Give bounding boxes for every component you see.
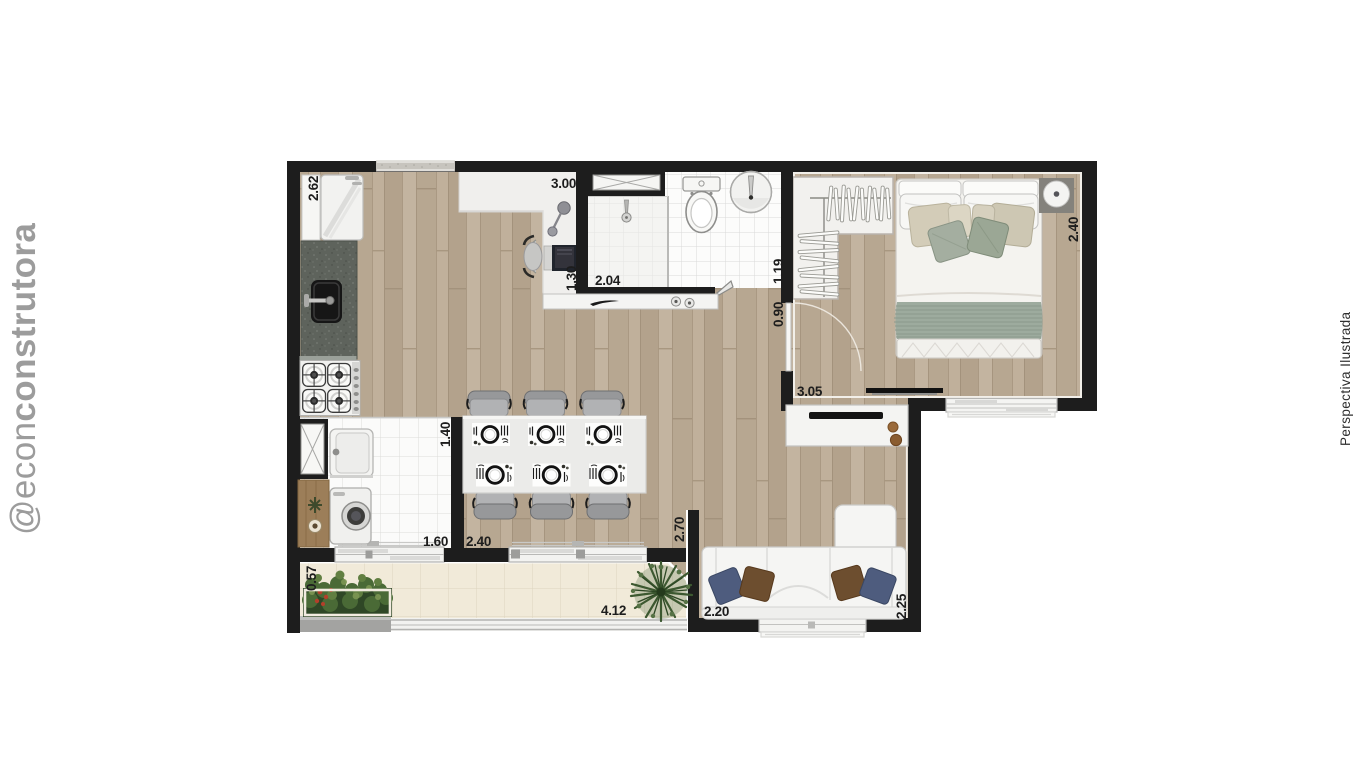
svg-text:2.04: 2.04	[595, 273, 621, 288]
svg-text:0.90: 0.90	[771, 302, 786, 327]
svg-text:3.05: 3.05	[797, 384, 823, 399]
svg-text:1.19: 1.19	[771, 259, 786, 284]
svg-text:1.40: 1.40	[438, 422, 453, 447]
svg-text:1.30: 1.30	[564, 266, 579, 291]
svg-text:2.62: 2.62	[306, 176, 321, 201]
svg-text:1.60: 1.60	[423, 534, 448, 549]
svg-text:3.00: 3.00	[551, 176, 576, 191]
svg-text:2.20: 2.20	[704, 604, 729, 619]
svg-text:4.12: 4.12	[601, 603, 626, 618]
svg-text:0.57: 0.57	[304, 566, 319, 591]
svg-text:2.70: 2.70	[672, 517, 687, 542]
svg-text:@econconstrutora: @econconstrutora	[4, 223, 43, 535]
svg-text:2.25: 2.25	[894, 593, 909, 619]
svg-text:2.40: 2.40	[1066, 217, 1081, 242]
svg-text:2.40: 2.40	[466, 534, 491, 549]
svg-text:Perspectiva Ilustrada: Perspectiva Ilustrada	[1338, 311, 1353, 446]
